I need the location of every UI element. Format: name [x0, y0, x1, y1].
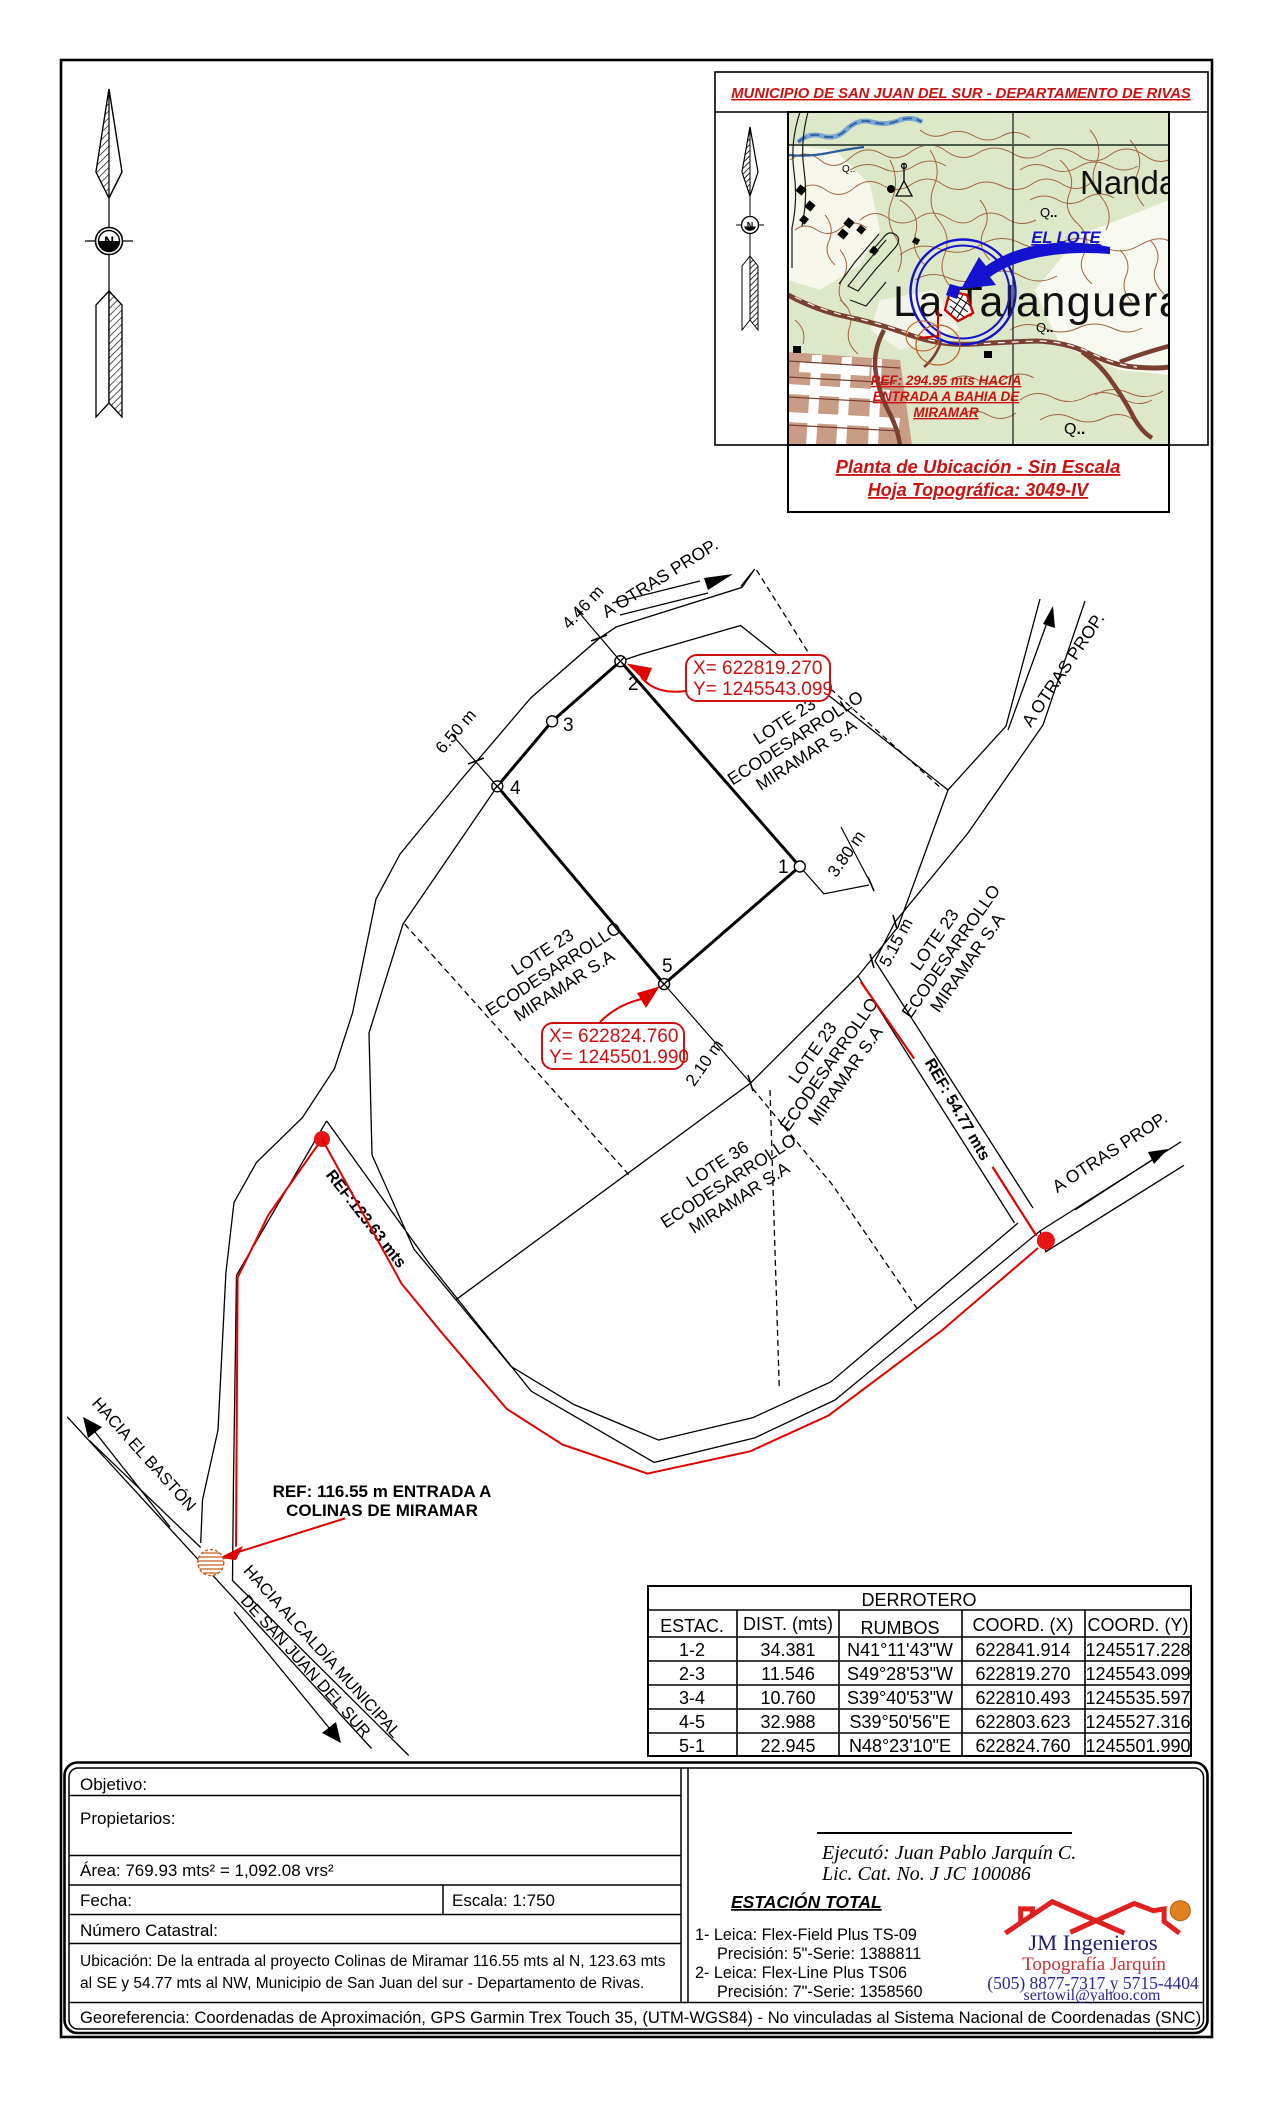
- svg-text:MIRAMAR: MIRAMAR: [913, 405, 978, 420]
- svg-text:Número Catastral:: Número Catastral:: [80, 1921, 218, 1940]
- svg-text:Escala: 1:750: Escala: 1:750: [452, 1891, 555, 1910]
- svg-text:ESTAC.: ESTAC.: [660, 1616, 724, 1636]
- svg-text:A OTRAS PROP.: A OTRAS PROP.: [1018, 609, 1109, 730]
- svg-text:S39°40'53"W: S39°40'53"W: [847, 1688, 953, 1708]
- svg-text:COORD. (Y): COORD. (Y): [1088, 1615, 1189, 1635]
- svg-text:1245543.099: 1245543.099: [1085, 1664, 1190, 1684]
- svg-text:1245535.597: 1245535.597: [1085, 1688, 1190, 1708]
- svg-text:Y= 1245501.990: Y= 1245501.990: [549, 1047, 689, 1068]
- svg-text:Ubicación: De la entrada al pr: Ubicación: De la entrada al proyecto Col…: [80, 1953, 666, 1970]
- svg-text:DERROTERO: DERROTERO: [861, 1590, 976, 1610]
- svg-text:Y= 1245543.099: Y= 1245543.099: [693, 679, 833, 700]
- svg-text:Precisión: 7"-Serie: 1358560: Precisión: 7"-Serie: 1358560: [717, 1983, 923, 2001]
- svg-text:3-4: 3-4: [679, 1688, 705, 1708]
- svg-text:2-3: 2-3: [679, 1664, 705, 1684]
- svg-text:1245517.228: 1245517.228: [1085, 1640, 1190, 1660]
- svg-text:2- Leica: Flex-Line Plus TS06: 2- Leica: Flex-Line Plus TS06: [695, 1964, 907, 1982]
- svg-text:Objetivo:: Objetivo:: [80, 1775, 147, 1794]
- svg-text:REF: 116.55 m ENTRADA A: REF: 116.55 m ENTRADA A: [273, 1482, 492, 1501]
- svg-text:Georeferencia: Coordenadas de: Georeferencia: Coordenadas de Aproximaci…: [80, 2008, 1201, 2027]
- svg-text:11.546: 11.546: [761, 1664, 815, 1684]
- svg-text:sertowil@yahoo.com: sertowil@yahoo.com: [1024, 1987, 1161, 2004]
- svg-text:N41°11'43"W: N41°11'43"W: [847, 1640, 953, 1660]
- svg-text:Q..: Q..: [1064, 421, 1085, 438]
- svg-text:HACIA EL BASTÓN: HACIA EL BASTÓN: [88, 1394, 200, 1515]
- svg-text:DE SAN JUAN DEL SUR: DE SAN JUAN DEL SUR: [237, 1592, 374, 1741]
- svg-text:REF: 294.95 mts HACIA: REF: 294.95 mts HACIA: [871, 373, 1022, 388]
- svg-text:RUMBOS: RUMBOS: [860, 1618, 939, 1638]
- svg-text:S39°50'56"E: S39°50'56"E: [849, 1712, 950, 1732]
- svg-text:La Talanguera: La Talanguera: [893, 278, 1184, 326]
- svg-text:COLINAS DE MIRAMAR: COLINAS DE MIRAMAR: [286, 1501, 478, 1520]
- svg-text:Q..: Q..: [1040, 205, 1057, 220]
- svg-text:1- Leica: Flex-Field Plus TS-0: 1- Leica: Flex-Field Plus TS-09: [695, 1926, 917, 1944]
- svg-text:COORD. (X): COORD. (X): [973, 1615, 1074, 1635]
- svg-text:10.760: 10.760: [760, 1688, 815, 1708]
- svg-text:Propietarios:: Propietarios:: [80, 1809, 175, 1828]
- svg-text:5: 5: [662, 956, 673, 977]
- svg-text:JM Ingenieros: JM Ingenieros: [1028, 1930, 1157, 1955]
- svg-text:N: N: [104, 233, 114, 249]
- svg-text:1: 1: [778, 857, 789, 878]
- svg-text:3: 3: [563, 715, 574, 736]
- svg-text:4-5: 4-5: [679, 1712, 705, 1732]
- svg-text:N48°23'10"E: N48°23'10"E: [849, 1736, 951, 1756]
- svg-text:MUNICIPIO DE SAN JUAN DEL SUR: MUNICIPIO DE SAN JUAN DEL SUR - DEPARTAM…: [731, 86, 1191, 102]
- svg-text:Hoja Topográfica: 3049-IV: Hoja Topográfica: 3049-IV: [868, 480, 1090, 500]
- svg-text:1-2: 1-2: [679, 1640, 705, 1660]
- svg-text:622819.270: 622819.270: [975, 1664, 1070, 1684]
- svg-text:al SE y 54.77 mts al NW, Munic: al SE y 54.77 mts al NW, Municipio de Sa…: [80, 1975, 644, 1992]
- svg-text:3.80 m: 3.80 m: [824, 827, 869, 880]
- svg-text:Precisión: 5"-Serie: 1388811: Precisión: 5"-Serie: 1388811: [717, 1945, 921, 1963]
- svg-text:N: N: [747, 221, 754, 231]
- svg-text:Fecha:: Fecha:: [80, 1891, 132, 1910]
- svg-text:EL LOTE: EL LOTE: [1031, 229, 1101, 247]
- svg-text:Topografía Jarquín: Topografía Jarquín: [1022, 1954, 1166, 1975]
- svg-text:622841.914: 622841.914: [975, 1640, 1070, 1660]
- svg-text:ENTRADA A BAHIA DE: ENTRADA A BAHIA DE: [873, 389, 1020, 404]
- svg-text:Lic. Cat. No. J JC 100086: Lic. Cat. No. J JC 100086: [821, 1863, 1031, 1885]
- svg-text:DIST. (mts): DIST. (mts): [743, 1614, 833, 1634]
- svg-text:Planta de Ubicación - Sin Esca: Planta de Ubicación - Sin Escala: [836, 456, 1121, 477]
- svg-text:4: 4: [510, 778, 521, 799]
- svg-text:6.50 m: 6.50 m: [432, 706, 480, 758]
- svg-text:Ejecutó: Juan Pablo Jarquín C.: Ejecutó: Juan Pablo Jarquín C.: [821, 1842, 1076, 1864]
- svg-text:Área: 769.93 mts² = 1,092.08 v: Área: 769.93 mts² = 1,092.08 vrs²: [80, 1861, 334, 1880]
- svg-text:34.381: 34.381: [760, 1640, 815, 1660]
- svg-text:22.945: 22.945: [760, 1736, 815, 1756]
- svg-text:622810.493: 622810.493: [975, 1688, 1070, 1708]
- svg-text:32.988: 32.988: [760, 1712, 815, 1732]
- svg-text:ESTACIÓN TOTAL: ESTACIÓN TOTAL: [731, 1891, 882, 1912]
- svg-text:5-1: 5-1: [679, 1736, 705, 1756]
- svg-text:S49°28'53"W: S49°28'53"W: [847, 1664, 953, 1684]
- svg-text:HACIA ALCALDÍA MUNICIPAL: HACIA ALCALDÍA MUNICIPAL: [240, 1561, 405, 1741]
- svg-text:REF: 54.77 mts: REF: 54.77 mts: [921, 1056, 993, 1164]
- svg-text:X= 622819.270: X= 622819.270: [693, 658, 822, 679]
- svg-text:A OTRAS PROP.: A OTRAS PROP.: [598, 534, 721, 621]
- svg-text:Q..: Q..: [842, 164, 855, 175]
- svg-text:622824.760: 622824.760: [975, 1736, 1070, 1756]
- svg-text:622803.623: 622803.623: [975, 1712, 1070, 1732]
- svg-text:1245501.990: 1245501.990: [1085, 1736, 1190, 1756]
- svg-text:X= 622824.760: X= 622824.760: [549, 1026, 678, 1047]
- svg-text:2: 2: [628, 674, 639, 695]
- svg-text:1245527.316: 1245527.316: [1085, 1712, 1190, 1732]
